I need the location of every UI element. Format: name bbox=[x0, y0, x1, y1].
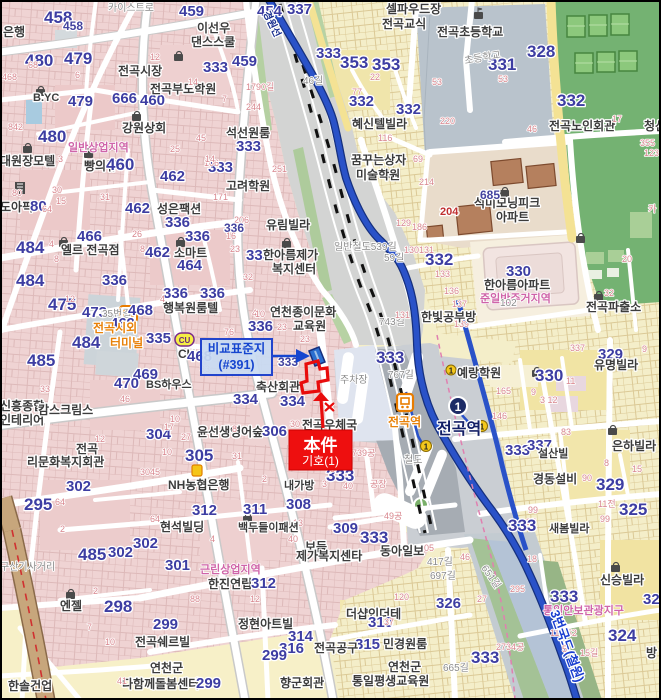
svg-text:312: 312 bbox=[192, 502, 217, 519]
svg-text:333: 333 bbox=[316, 45, 341, 62]
svg-text:76: 76 bbox=[224, 327, 234, 337]
svg-text:카: 카 bbox=[648, 204, 656, 214]
svg-text:328: 328 bbox=[527, 42, 555, 61]
svg-text:333: 333 bbox=[508, 516, 536, 535]
svg-text:69: 69 bbox=[413, 154, 423, 164]
svg-text:터미널: 터미널 bbox=[110, 335, 143, 350]
svg-text:739공: 739공 bbox=[352, 448, 375, 458]
svg-text:45: 45 bbox=[196, 133, 206, 143]
svg-text:485: 485 bbox=[27, 351, 55, 370]
svg-text:146: 146 bbox=[492, 411, 507, 421]
svg-text:전곡쉐르빌: 전곡쉐르빌 bbox=[135, 634, 190, 649]
svg-text:7: 7 bbox=[222, 94, 227, 104]
svg-text:685: 685 bbox=[480, 188, 500, 202]
svg-text:80: 80 bbox=[12, 188, 22, 198]
svg-text:민경원룸: 민경원룸 bbox=[383, 636, 427, 651]
svg-text:한빛공부방: 한빛공부방 bbox=[421, 309, 476, 324]
svg-text:1: 1 bbox=[449, 367, 454, 376]
svg-text:8: 8 bbox=[54, 254, 59, 264]
svg-text:12: 12 bbox=[250, 594, 260, 604]
svg-text:64: 64 bbox=[42, 204, 52, 214]
svg-text:16: 16 bbox=[226, 231, 236, 241]
svg-text:325: 325 bbox=[643, 591, 661, 608]
svg-text:305: 305 bbox=[185, 446, 213, 465]
svg-text:302: 302 bbox=[133, 535, 158, 552]
svg-text:전곡교식: 전곡교식 bbox=[382, 16, 426, 31]
svg-text:14: 14 bbox=[205, 154, 215, 164]
svg-text:예랑학원: 예랑학원 bbox=[457, 365, 501, 380]
svg-text:BS하우스: BS하우스 bbox=[146, 377, 192, 391]
svg-text:기호(1): 기호(1) bbox=[302, 454, 339, 468]
svg-text:27: 27 bbox=[181, 432, 191, 442]
svg-text:7: 7 bbox=[87, 622, 92, 632]
svg-text:102: 102 bbox=[500, 298, 517, 309]
svg-text:한솔건업: 한솔건업 bbox=[8, 678, 52, 693]
svg-text:355: 355 bbox=[640, 138, 655, 148]
svg-text:11전: 11전 bbox=[598, 499, 616, 509]
svg-text:468: 468 bbox=[2, 72, 17, 82]
svg-text:334: 334 bbox=[280, 393, 306, 410]
svg-text:B.YC: B.YC bbox=[33, 92, 59, 104]
svg-text:10: 10 bbox=[170, 414, 180, 424]
svg-text:120: 120 bbox=[394, 592, 409, 602]
svg-text:302: 302 bbox=[108, 544, 133, 561]
svg-text:연천군: 연천군 bbox=[150, 660, 183, 675]
svg-text:329: 329 bbox=[596, 475, 624, 494]
svg-text:315: 315 bbox=[355, 636, 380, 653]
svg-text:330: 330 bbox=[535, 366, 563, 385]
svg-text:정현아트빌: 정현아트빌 bbox=[238, 616, 293, 631]
svg-text:4: 4 bbox=[210, 534, 215, 544]
svg-text:리문화복지회관: 리문화복지회관 bbox=[27, 454, 104, 469]
svg-text:459: 459 bbox=[179, 3, 204, 20]
svg-text:한진연립: 한진연립 bbox=[208, 576, 252, 591]
svg-text:131: 131 bbox=[395, 310, 410, 320]
svg-text:연천종이문화: 연천종이문화 bbox=[270, 304, 336, 319]
svg-text:14: 14 bbox=[188, 77, 198, 87]
svg-text:전곡노인회관: 전곡노인회관 bbox=[549, 118, 615, 133]
svg-text:백두들이패션: 백두들이패션 bbox=[238, 520, 299, 534]
svg-text:내가방: 내가방 bbox=[284, 478, 314, 492]
svg-text:경동설비: 경동설비 bbox=[533, 471, 577, 486]
svg-text:299: 299 bbox=[153, 616, 178, 633]
svg-text:466: 466 bbox=[77, 228, 102, 245]
svg-text:53: 53 bbox=[432, 77, 442, 87]
svg-text:本件: 本件 bbox=[304, 435, 338, 455]
svg-text:46: 46 bbox=[460, 552, 470, 562]
svg-text:15: 15 bbox=[56, 196, 66, 206]
svg-text:꿈꾸는상자: 꿈꾸는상자 bbox=[351, 152, 406, 167]
svg-text:480: 480 bbox=[38, 127, 66, 146]
svg-text:136: 136 bbox=[444, 286, 459, 296]
svg-text:15길: 15길 bbox=[580, 648, 598, 658]
svg-text:186: 186 bbox=[412, 222, 427, 232]
svg-text:23: 23 bbox=[230, 244, 240, 254]
svg-text:301: 301 bbox=[165, 557, 190, 574]
svg-text:05: 05 bbox=[424, 543, 434, 553]
svg-text:83: 83 bbox=[561, 427, 571, 437]
svg-text:484: 484 bbox=[16, 271, 45, 290]
svg-text:일반철도539길: 일반철도539길 bbox=[334, 240, 397, 253]
svg-text:53: 53 bbox=[498, 74, 508, 84]
svg-text:308: 308 bbox=[286, 496, 311, 513]
svg-text:31: 31 bbox=[100, 192, 110, 202]
svg-text:행복원룸텔: 행복원룸텔 bbox=[163, 300, 218, 315]
svg-text:767길: 767길 bbox=[388, 368, 414, 381]
svg-text:33: 33 bbox=[40, 384, 50, 394]
svg-text:9: 9 bbox=[642, 344, 647, 354]
svg-text:현석빌딩: 현석빌딩 bbox=[160, 519, 204, 534]
svg-text:복지센터: 복지센터 bbox=[272, 261, 316, 276]
svg-text:은하빌라: 은하빌라 bbox=[612, 438, 656, 453]
svg-text:334: 334 bbox=[233, 391, 259, 408]
svg-text:479: 479 bbox=[68, 93, 93, 110]
svg-text:133: 133 bbox=[435, 269, 450, 279]
svg-text:10: 10 bbox=[162, 447, 172, 457]
svg-text:333: 333 bbox=[376, 348, 404, 367]
svg-text:336: 336 bbox=[200, 285, 225, 302]
svg-text:제가복지센타: 제가복지센타 bbox=[296, 548, 362, 563]
svg-text:혜신텔빌라: 혜신텔빌라 bbox=[352, 116, 407, 131]
svg-text:25: 25 bbox=[170, 144, 180, 154]
svg-text:이선우: 이선우 bbox=[197, 20, 230, 35]
svg-text:129: 129 bbox=[396, 218, 411, 228]
svg-text:카이스트로: 카이스트로 bbox=[108, 2, 154, 14]
svg-text:68: 68 bbox=[28, 60, 38, 70]
svg-text:462: 462 bbox=[160, 168, 185, 185]
svg-text:130131: 130131 bbox=[404, 245, 434, 255]
svg-text:유림빌라: 유림빌라 bbox=[266, 217, 310, 232]
svg-text:333: 333 bbox=[550, 587, 578, 606]
svg-text:고려학원: 고려학원 bbox=[226, 178, 270, 193]
svg-text:336: 336 bbox=[102, 272, 127, 289]
svg-text:4: 4 bbox=[49, 239, 54, 249]
svg-text:청산: 청산 bbox=[644, 118, 661, 133]
svg-text:8: 8 bbox=[140, 244, 145, 254]
svg-text:214: 214 bbox=[419, 177, 434, 187]
svg-text:326: 326 bbox=[436, 595, 461, 612]
svg-text:470: 470 bbox=[114, 375, 139, 392]
svg-text:26: 26 bbox=[132, 229, 142, 239]
svg-text:666: 666 bbox=[112, 90, 137, 107]
svg-text:244: 244 bbox=[246, 102, 261, 112]
svg-text:417길: 417길 bbox=[427, 555, 453, 568]
svg-text:새봄빌라: 새봄빌라 bbox=[549, 521, 590, 535]
svg-text:842: 842 bbox=[8, 122, 23, 132]
svg-text:전곡부도학원: 전곡부도학원 bbox=[150, 81, 216, 96]
svg-text:460: 460 bbox=[106, 155, 134, 174]
svg-text:설산빌: 설산빌 bbox=[538, 446, 568, 460]
svg-text:윤선생영어숲: 윤선생영어숲 bbox=[197, 424, 263, 439]
svg-text:99: 99 bbox=[600, 514, 610, 524]
svg-text:459: 459 bbox=[232, 53, 257, 70]
svg-text:295: 295 bbox=[510, 584, 525, 594]
svg-text:전곡공구: 전곡공구 bbox=[314, 640, 358, 655]
svg-text:축산회관: 축산회관 bbox=[256, 379, 300, 394]
svg-text:46: 46 bbox=[527, 124, 537, 134]
svg-text:철도: 철도 bbox=[404, 454, 422, 466]
svg-text:484: 484 bbox=[72, 333, 101, 352]
svg-text:46: 46 bbox=[120, 394, 130, 404]
svg-text:485: 485 bbox=[78, 545, 106, 564]
svg-text:302: 302 bbox=[66, 478, 91, 495]
svg-text:(#391): (#391) bbox=[218, 358, 254, 372]
svg-text:30: 30 bbox=[52, 185, 62, 195]
svg-text:구산기사거리: 구산기사거리 bbox=[0, 561, 55, 573]
svg-text:299: 299 bbox=[262, 647, 287, 664]
svg-text:8: 8 bbox=[604, 458, 609, 468]
svg-text:비교표준지: 비교표준지 bbox=[208, 341, 266, 356]
svg-text:49공: 49공 bbox=[384, 511, 402, 521]
svg-text:462: 462 bbox=[125, 200, 150, 217]
svg-text:11: 11 bbox=[566, 376, 575, 386]
svg-text:3045: 3045 bbox=[140, 467, 160, 477]
svg-text:333: 333 bbox=[203, 59, 228, 76]
svg-text:은행: 은행 bbox=[3, 24, 25, 39]
svg-text:88: 88 bbox=[190, 594, 200, 604]
svg-text:아파트: 아파트 bbox=[496, 209, 529, 224]
svg-text:미술학원: 미술학원 bbox=[356, 167, 400, 182]
svg-text:306: 306 bbox=[262, 423, 287, 440]
svg-text:대원장모텔: 대원장모텔 bbox=[0, 154, 55, 168]
svg-text:방: 방 bbox=[646, 645, 657, 660]
svg-text:공장: 공장 bbox=[370, 479, 387, 489]
svg-text:324: 324 bbox=[608, 626, 637, 645]
svg-text:23: 23 bbox=[300, 334, 310, 344]
svg-text:향군회관: 향군회관 bbox=[280, 675, 324, 690]
svg-text:연천군: 연천군 bbox=[388, 659, 421, 674]
svg-text:479: 479 bbox=[64, 49, 92, 68]
svg-text:41: 41 bbox=[117, 676, 127, 686]
svg-text:CU: CU bbox=[179, 336, 191, 345]
svg-text:캄스크림스: 캄스크림스 bbox=[38, 403, 93, 417]
svg-text:31: 31 bbox=[232, 451, 242, 461]
svg-text:일반상업지역: 일반상업지역 bbox=[68, 140, 129, 154]
svg-text:4: 4 bbox=[160, 294, 165, 304]
svg-text:46길: 46길 bbox=[303, 74, 323, 87]
svg-text:311: 311 bbox=[243, 501, 267, 518]
svg-text:12: 12 bbox=[95, 434, 105, 444]
svg-text:333: 333 bbox=[360, 528, 388, 547]
svg-text:59길: 59길 bbox=[384, 251, 404, 264]
svg-text:332: 332 bbox=[396, 101, 421, 118]
svg-text:엔젤: 엔젤 bbox=[60, 598, 82, 613]
svg-text:332: 332 bbox=[557, 91, 585, 110]
svg-text:신승빌라: 신승빌라 bbox=[600, 572, 644, 587]
svg-text:298: 298 bbox=[104, 597, 132, 616]
svg-text:335: 335 bbox=[146, 330, 171, 347]
svg-text:1: 1 bbox=[424, 443, 429, 452]
svg-text:댄스스쿨: 댄스스쿨 bbox=[191, 34, 235, 49]
svg-text:137: 137 bbox=[452, 299, 467, 309]
svg-text:37: 37 bbox=[384, 617, 394, 627]
svg-text:295: 295 bbox=[24, 495, 52, 514]
svg-text:12: 12 bbox=[150, 52, 160, 62]
svg-text:333: 333 bbox=[236, 138, 261, 155]
svg-text:도아픽: 도아픽 bbox=[0, 199, 33, 214]
svg-text:주차장: 주차장 bbox=[340, 374, 368, 386]
svg-text:665길: 665길 bbox=[443, 661, 469, 674]
svg-text:6: 6 bbox=[75, 70, 80, 80]
svg-text:통일평생교육원: 통일평생교육원 bbox=[352, 673, 429, 688]
svg-text:전곡초등학교: 전곡초등학교 bbox=[437, 24, 503, 39]
svg-text:458: 458 bbox=[63, 19, 83, 33]
svg-text:10: 10 bbox=[255, 309, 265, 319]
svg-text:20: 20 bbox=[622, 254, 632, 264]
svg-text:다함께돌봄센터: 다함께돌봄센터 bbox=[122, 676, 199, 691]
svg-text:171: 171 bbox=[213, 192, 228, 202]
svg-text:18: 18 bbox=[527, 554, 537, 564]
svg-text:325: 325 bbox=[619, 500, 647, 519]
svg-text:3 12: 3 12 bbox=[540, 395, 558, 405]
svg-text:10: 10 bbox=[105, 637, 115, 647]
svg-text:64: 64 bbox=[150, 514, 160, 524]
svg-text:교육원: 교육원 bbox=[293, 318, 326, 333]
svg-text:15: 15 bbox=[632, 464, 642, 474]
svg-text:2: 2 bbox=[262, 474, 267, 484]
svg-text:27: 27 bbox=[477, 594, 487, 604]
svg-text:23: 23 bbox=[277, 322, 287, 332]
svg-text:165: 165 bbox=[496, 386, 511, 396]
svg-text:697길: 697길 bbox=[430, 569, 456, 582]
svg-text:464: 464 bbox=[177, 257, 203, 274]
svg-text:근린상업지역: 근린상업지역 bbox=[200, 562, 261, 576]
svg-text:5: 5 bbox=[562, 644, 567, 654]
svg-text:309: 309 bbox=[333, 520, 358, 537]
svg-text:2: 2 bbox=[93, 586, 98, 596]
svg-text:강원상회: 강원상회 bbox=[122, 120, 166, 135]
svg-text:한아름제가: 한아름제가 bbox=[263, 247, 318, 262]
svg-text:336: 336 bbox=[185, 228, 210, 245]
svg-text:312: 312 bbox=[251, 575, 276, 592]
svg-text:2734공: 2734공 bbox=[496, 642, 524, 652]
svg-text:336: 336 bbox=[163, 285, 188, 302]
svg-text:한아름아파트: 한아름아파트 bbox=[484, 277, 550, 292]
svg-text:32: 32 bbox=[243, 272, 253, 282]
svg-text:12: 12 bbox=[65, 294, 75, 304]
svg-text:전곡역: 전곡역 bbox=[437, 420, 481, 438]
svg-text:90: 90 bbox=[582, 473, 592, 483]
svg-text:462: 462 bbox=[145, 244, 170, 261]
svg-text:337: 337 bbox=[287, 1, 312, 18]
svg-text:299: 299 bbox=[196, 675, 221, 692]
svg-text:220: 220 bbox=[440, 116, 455, 126]
svg-text:2: 2 bbox=[60, 524, 65, 534]
svg-text:116: 116 bbox=[378, 133, 392, 143]
svg-text:8: 8 bbox=[232, 424, 237, 434]
svg-text:셀파우드장: 셀파우드장 bbox=[386, 1, 441, 16]
svg-text:17: 17 bbox=[612, 114, 622, 124]
svg-text:64: 64 bbox=[55, 497, 65, 507]
svg-text:337: 337 bbox=[570, 343, 585, 353]
svg-text:99: 99 bbox=[528, 505, 538, 515]
svg-text:204: 204 bbox=[440, 206, 459, 218]
svg-text:전곡시장: 전곡시장 bbox=[118, 63, 162, 78]
svg-text:1: 1 bbox=[455, 400, 462, 414]
svg-text:22: 22 bbox=[370, 72, 380, 82]
svg-text:1790길: 1790길 bbox=[246, 82, 274, 92]
svg-text:NH농협은행: NH농협은행 bbox=[168, 477, 230, 492]
svg-text:32: 32 bbox=[604, 288, 614, 298]
svg-text:484: 484 bbox=[16, 238, 45, 257]
svg-text:30: 30 bbox=[290, 419, 300, 429]
svg-text:123: 123 bbox=[644, 148, 659, 158]
svg-text:전곡파출소: 전곡파출소 bbox=[586, 299, 641, 314]
svg-text:353: 353 bbox=[340, 53, 368, 72]
svg-text:유명빌라: 유명빌라 bbox=[594, 357, 638, 372]
svg-text:전곡역: 전곡역 bbox=[388, 414, 421, 429]
svg-text:336: 336 bbox=[248, 318, 273, 335]
svg-text:3: 3 bbox=[58, 154, 63, 164]
svg-text:77: 77 bbox=[352, 87, 362, 97]
svg-text:40: 40 bbox=[288, 534, 298, 544]
svg-text:9: 9 bbox=[531, 387, 536, 397]
svg-text:251: 251 bbox=[272, 164, 287, 174]
